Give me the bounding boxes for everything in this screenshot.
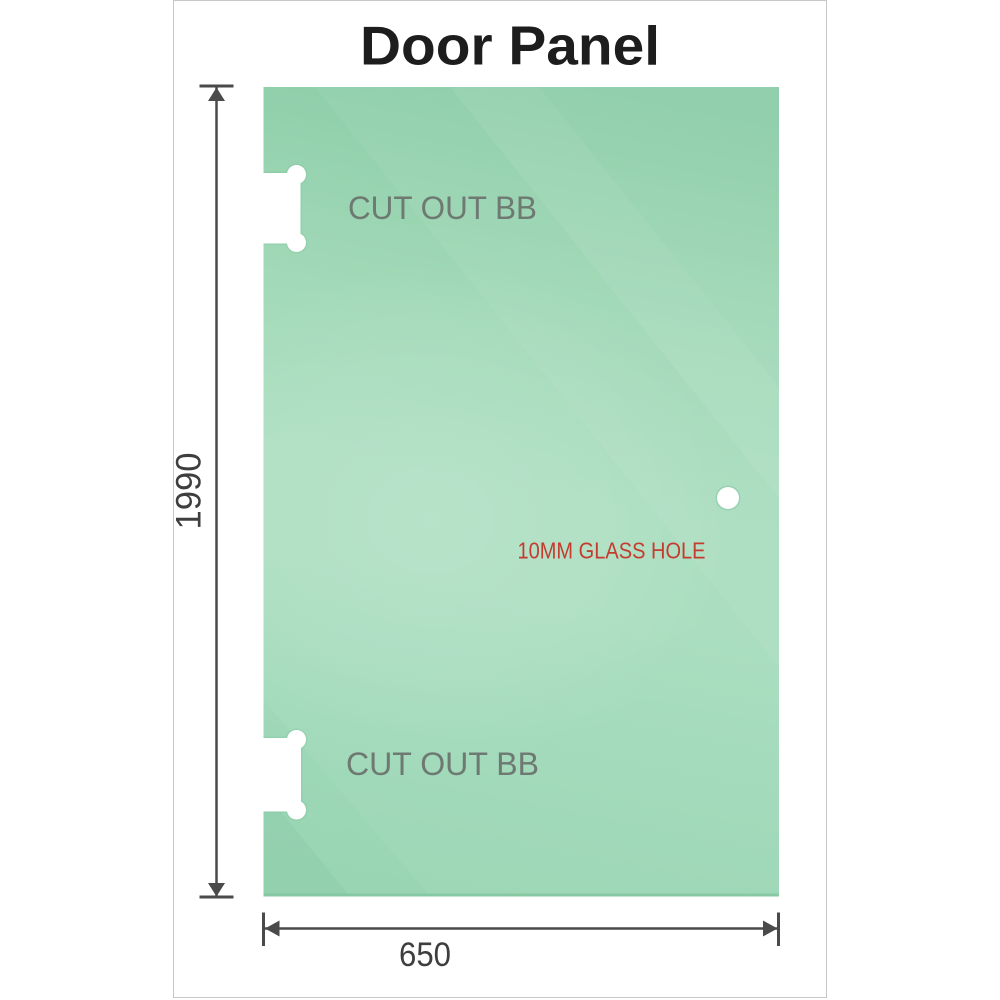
svg-text:650: 650 xyxy=(399,936,451,974)
svg-text:10MM GLASS HOLE: 10MM GLASS HOLE xyxy=(518,538,706,564)
svg-text:1990: 1990 xyxy=(170,453,209,530)
svg-text:Door Panel: Door Panel xyxy=(360,15,660,77)
svg-text:CUT OUT BB: CUT OUT BB xyxy=(348,190,537,226)
svg-text:CUT OUT BB: CUT OUT BB xyxy=(346,746,539,782)
